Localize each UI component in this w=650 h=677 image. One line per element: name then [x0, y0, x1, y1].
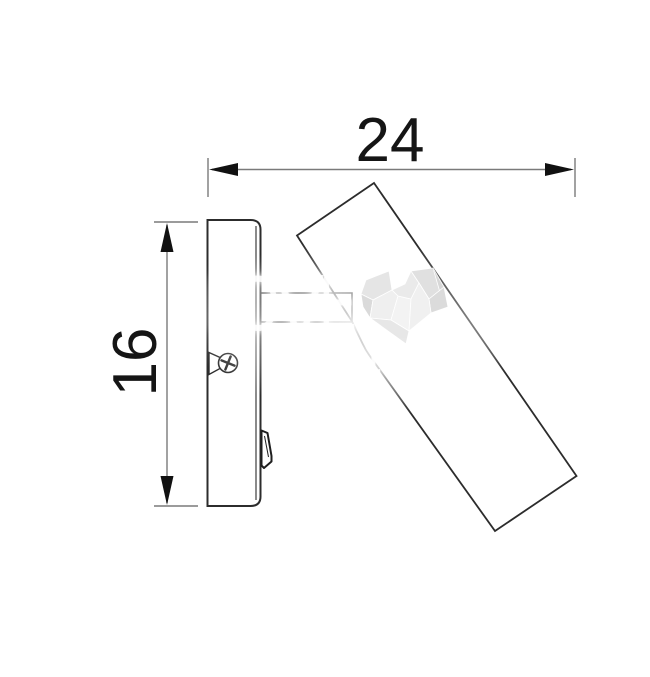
width-dimension-label: 24	[325, 110, 455, 172]
watermark-tagline-text: lighting	[296, 334, 443, 379]
watermark-brand-text: LOVE	[208, 268, 353, 338]
watermark-brand-lo: LO	[208, 259, 276, 347]
technical-drawing-page: LOVE lighting 24 16	[0, 0, 650, 677]
height-dimension-label: 16	[105, 297, 167, 427]
